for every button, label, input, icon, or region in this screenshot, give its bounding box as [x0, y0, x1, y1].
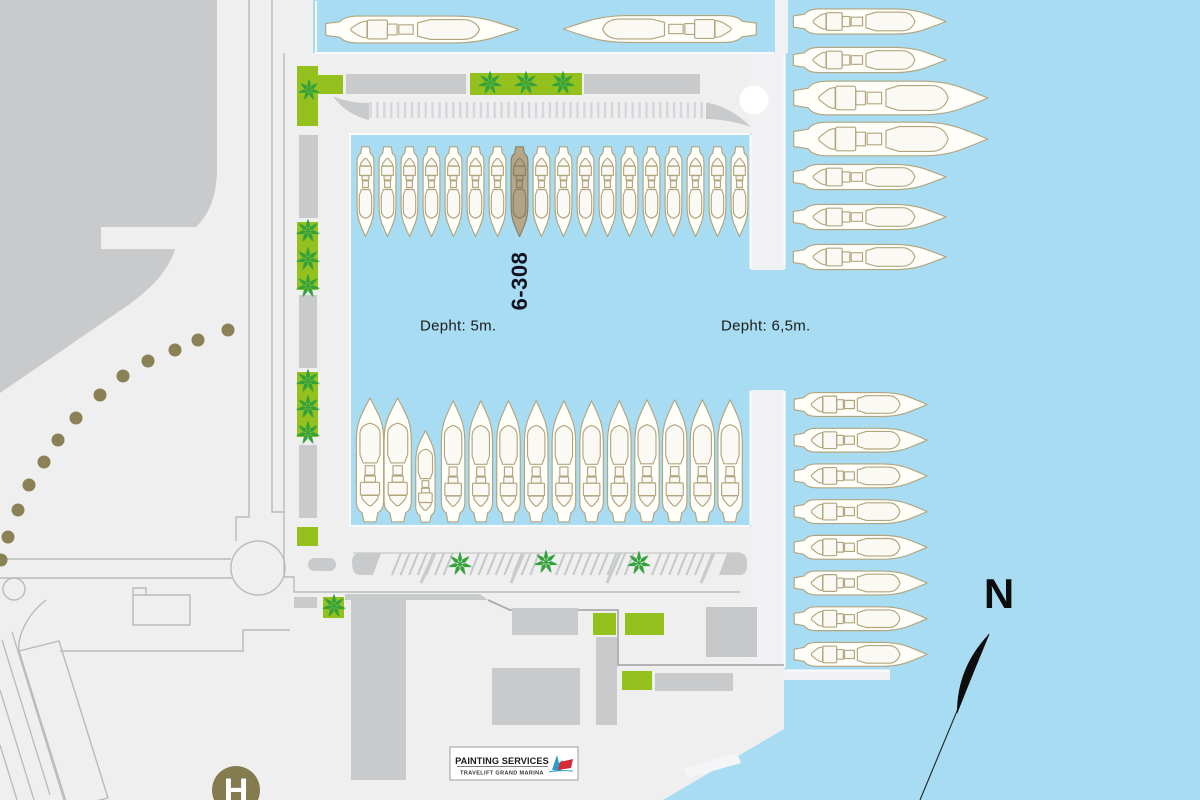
svg-text:N: N	[984, 570, 1014, 617]
svg-text:Depht: 5m.: Depht: 5m.	[420, 318, 496, 335]
svg-text:Depht: 6,5m.: Depht: 6,5m.	[721, 318, 810, 335]
svg-text:TRAVELIFT GRAND MARINA: TRAVELIFT GRAND MARINA	[460, 771, 544, 777]
svg-text:PAINTING SERVICES: PAINTING SERVICES	[455, 756, 549, 766]
svg-text:6-308: 6-308	[507, 252, 532, 311]
svg-text:H: H	[224, 772, 249, 800]
